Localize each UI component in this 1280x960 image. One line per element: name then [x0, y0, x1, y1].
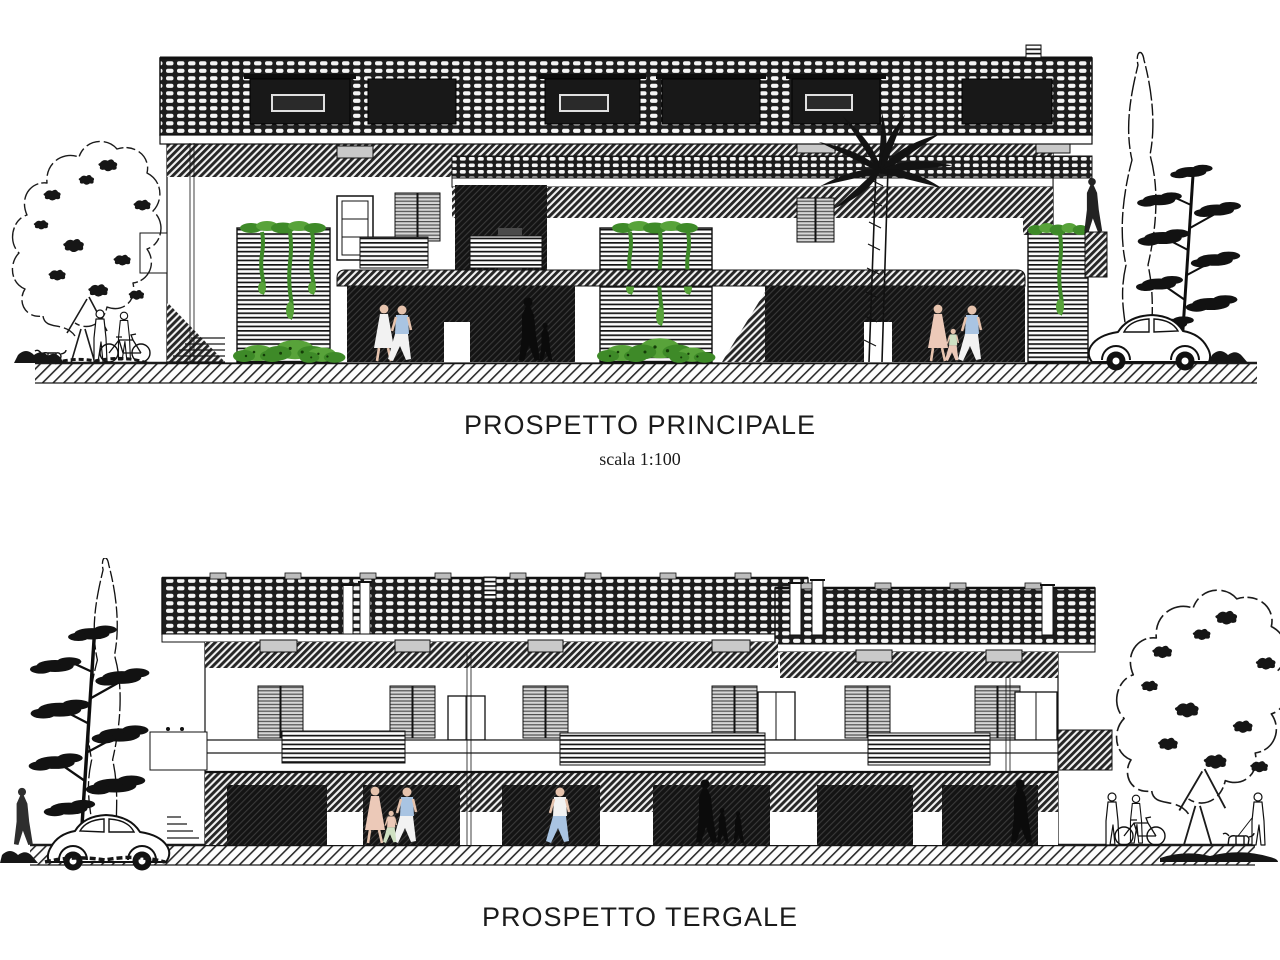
drawing-sheet: PROSPETTO PRINCIPALE scala 1:100 [0, 0, 1280, 960]
front-side-box [140, 233, 167, 273]
rear-right-scene [1106, 590, 1280, 862]
rear-pavement [30, 845, 1255, 865]
front-chimney [1026, 45, 1041, 59]
front-recessed-porch [455, 185, 547, 273]
rear-left-scene [0, 558, 169, 871]
rear-stairs [167, 817, 205, 845]
rear-roof [162, 573, 1095, 652]
front-building [140, 45, 1092, 363]
elevation-front-title: PROSPETTO PRINCIPALE [0, 410, 1280, 441]
elevation-front-scale: scala 1:100 [0, 449, 1280, 470]
front-balcony-person [1084, 178, 1102, 232]
elevation-rear-title: PROSPETTO TERGALE [0, 902, 1280, 933]
front-main-roof [160, 45, 1092, 144]
elevation-rear-drawing [0, 558, 1280, 888]
rear-garage-level [167, 772, 1058, 845]
elevation-front-drawing [0, 0, 1280, 400]
front-pavement [35, 363, 1257, 383]
rear-building [150, 573, 1112, 845]
front-left-scene [12, 141, 161, 363]
rear-shadow-box [1058, 730, 1112, 770]
front-right-scene [1089, 52, 1248, 370]
